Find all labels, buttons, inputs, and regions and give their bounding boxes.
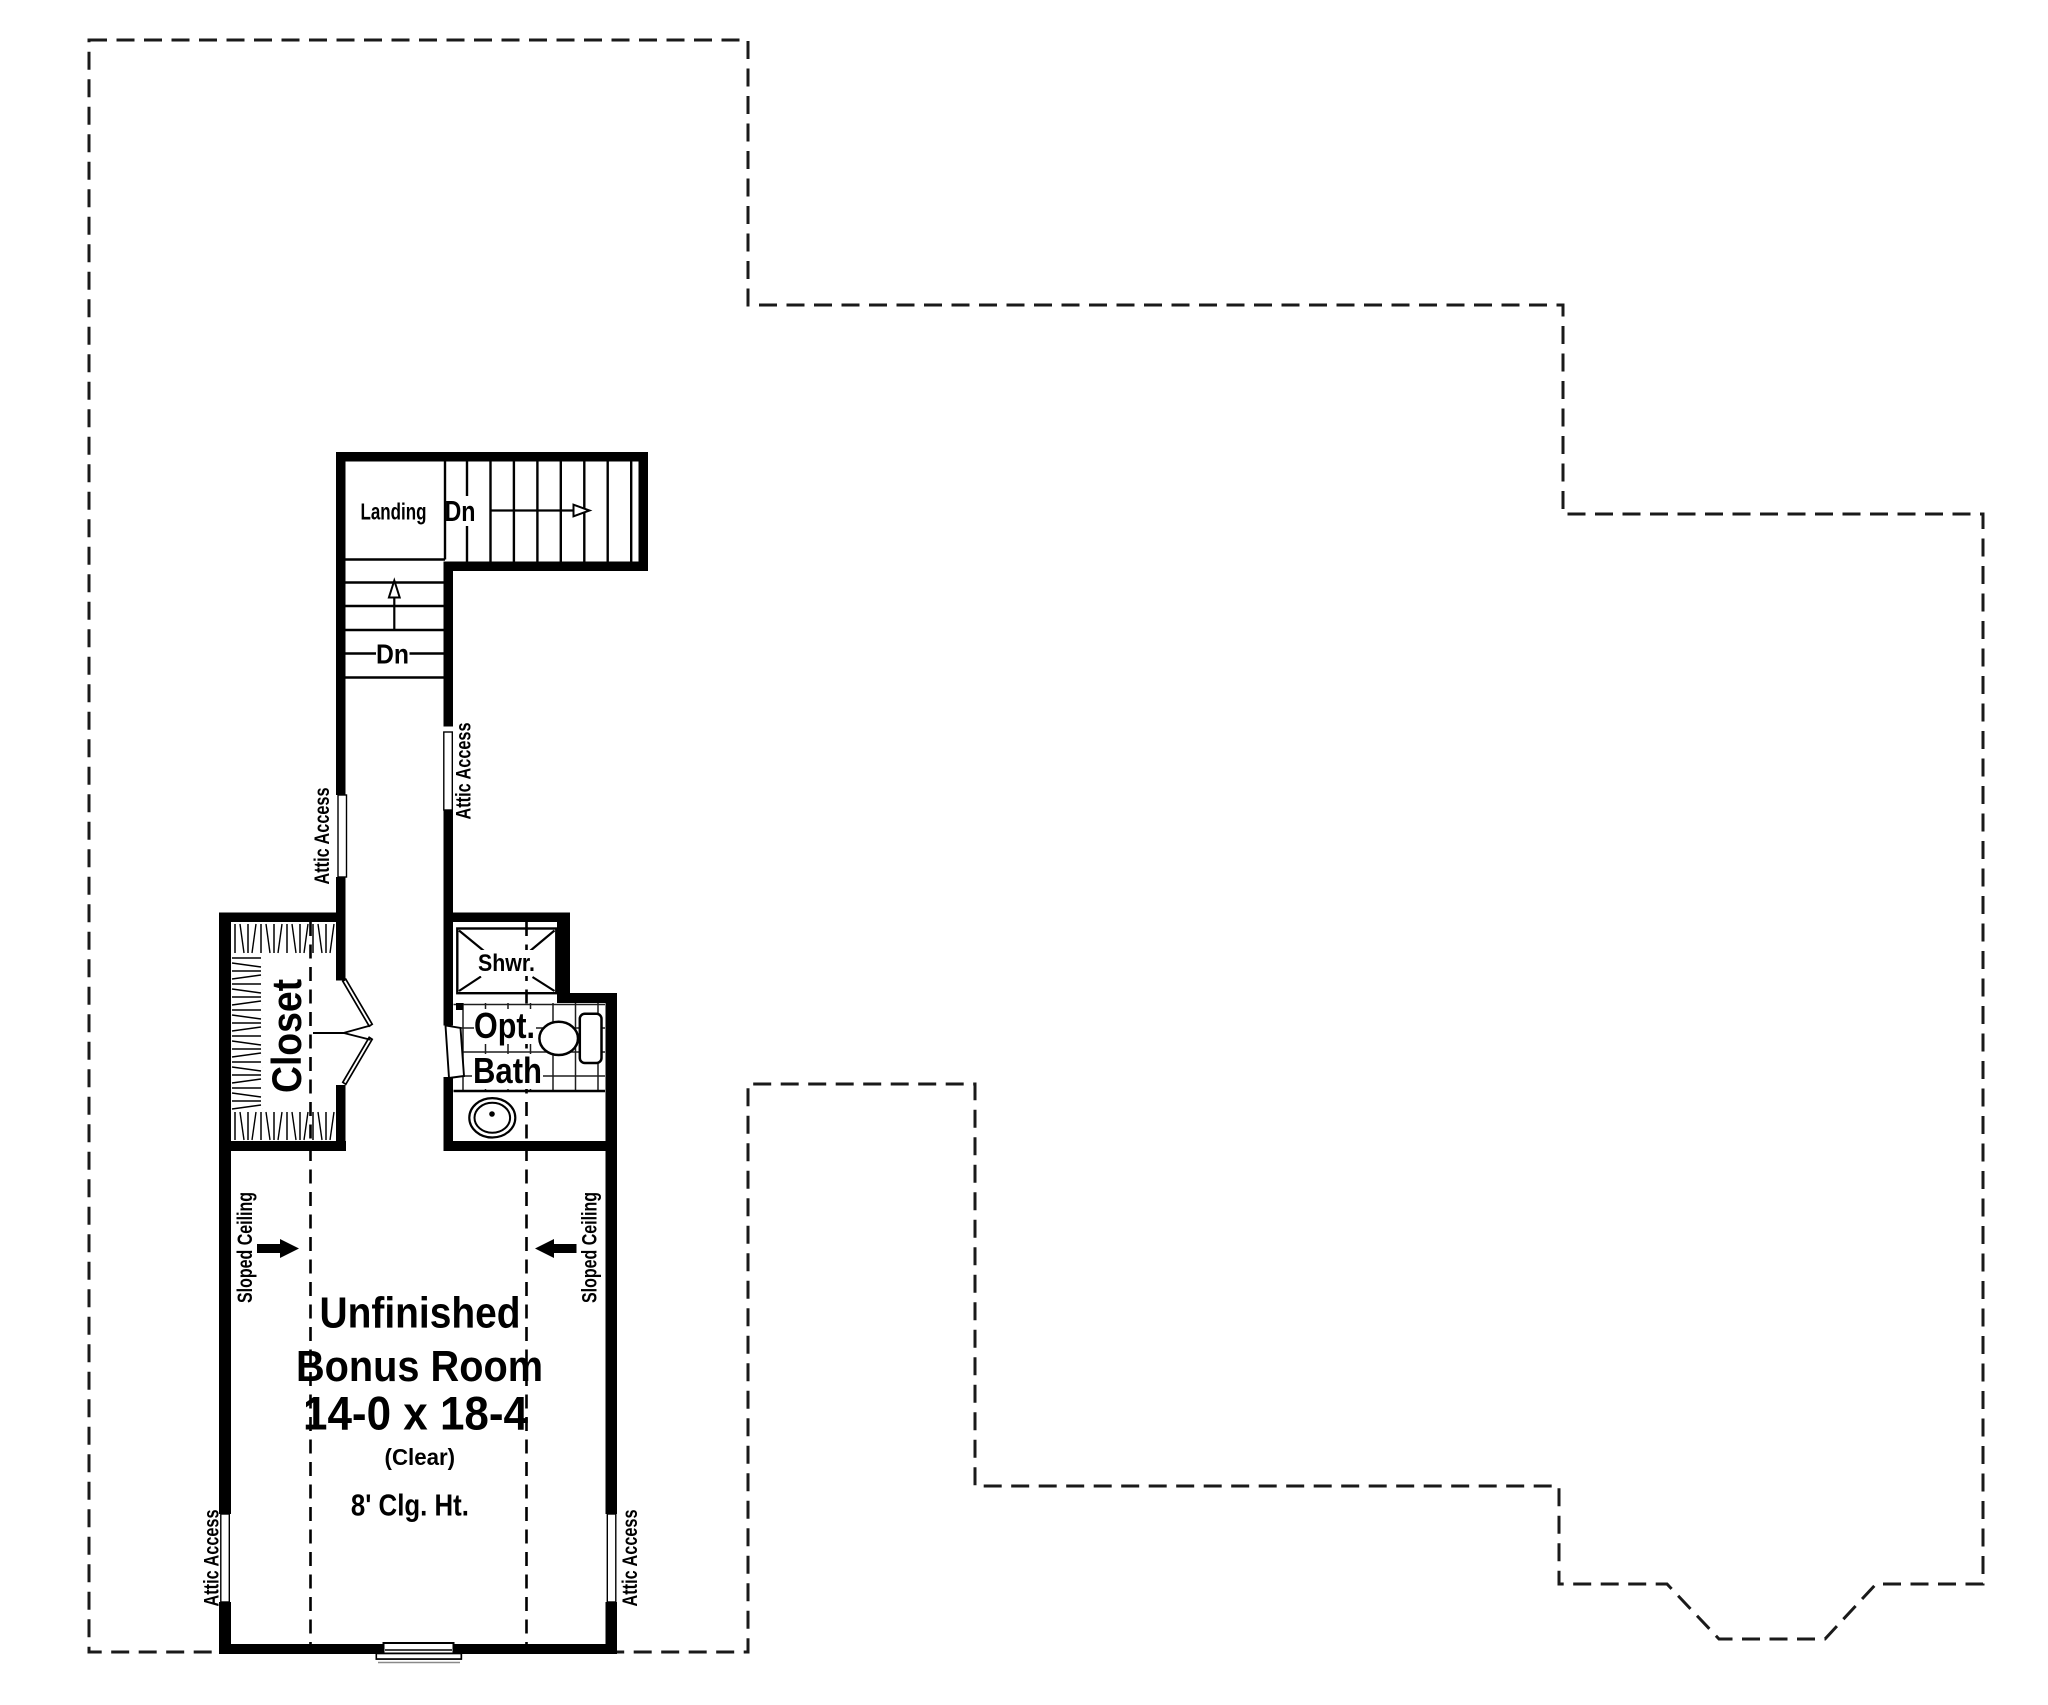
svg-text:Dn: Dn: [376, 639, 409, 670]
svg-text:Closet: Closet: [263, 979, 310, 1093]
svg-text:Attic Access: Attic Access: [619, 1510, 642, 1607]
svg-text:Landing: Landing: [361, 499, 427, 525]
svg-text:Unfinished: Unfinished: [320, 1289, 521, 1338]
svg-text:Sloped Ceiling: Sloped Ceiling: [234, 1192, 257, 1303]
svg-text:Dn: Dn: [445, 496, 476, 528]
svg-text:(Clear): (Clear): [385, 1444, 456, 1470]
svg-text:14-0 x 18-4: 14-0 x 18-4: [303, 1387, 528, 1440]
svg-text:Sloped Ceiling: Sloped Ceiling: [579, 1192, 602, 1303]
svg-text:Attic Access: Attic Access: [453, 723, 476, 820]
svg-text:Bonus Room: Bonus Room: [296, 1342, 543, 1391]
svg-text:Bath: Bath: [473, 1050, 542, 1091]
svg-text:Opt.: Opt.: [474, 1005, 535, 1046]
svg-text:8' Clg. Ht.: 8' Clg. Ht.: [351, 1488, 469, 1523]
svg-text:Shwr.: Shwr.: [478, 950, 535, 977]
svg-text:Attic Access: Attic Access: [201, 1510, 224, 1607]
svg-text:Attic Access: Attic Access: [311, 788, 334, 885]
